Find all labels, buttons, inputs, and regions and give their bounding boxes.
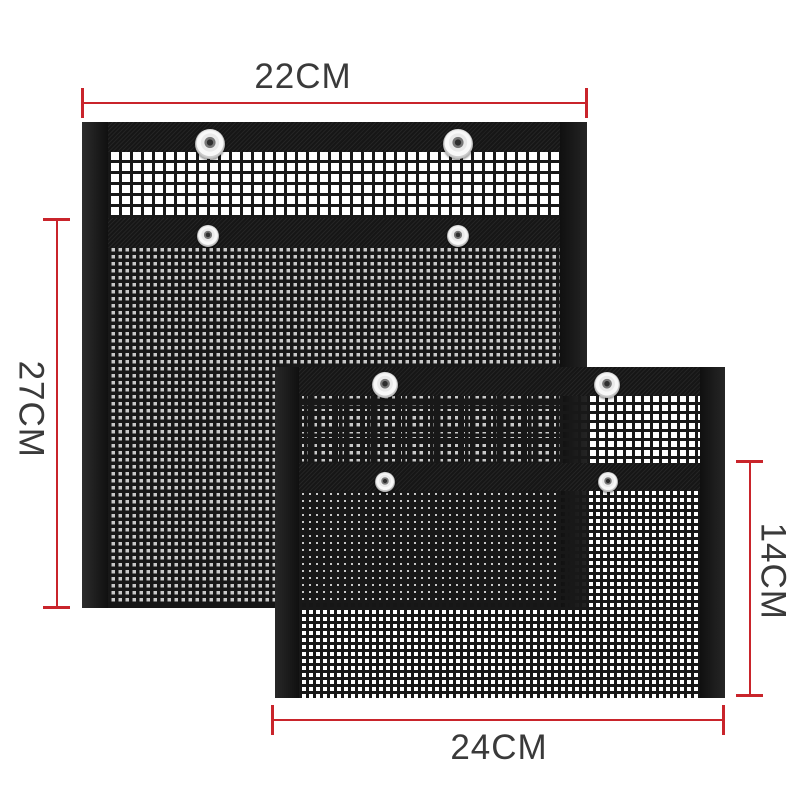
snap-fastener <box>372 372 398 398</box>
snap-fastener <box>447 225 469 247</box>
small-bag-body-mesh <box>299 491 700 698</box>
snap-fastener <box>594 372 620 398</box>
snap-fastener <box>197 225 219 247</box>
bottom-dimension-line <box>272 719 724 721</box>
left-dimension-line <box>56 220 58 608</box>
top-dimension-tick-left <box>81 88 84 118</box>
large-bag-left-binding <box>82 122 108 608</box>
right-dimension-line <box>749 462 751 697</box>
bottom-dimension-tick-right <box>722 705 725 735</box>
small-bag-top-band <box>299 367 700 396</box>
top-dimension-line <box>82 102 587 104</box>
large-bag-flap-mesh <box>108 152 560 218</box>
right-height-label: 14CM <box>753 496 792 646</box>
left-dimension-tick-bottom <box>43 606 70 609</box>
snap-fastener <box>195 129 225 159</box>
large-bag-top-band <box>108 122 560 152</box>
small-bag-flap-mesh <box>299 396 700 463</box>
right-dimension-tick-bottom <box>736 694 763 697</box>
large-bag-snap-band <box>108 218 560 248</box>
left-height-label: 27CM <box>11 334 50 484</box>
product-photo-canvas: 22CM 27CM 14CM 24CM <box>0 0 800 800</box>
snap-fastener <box>598 472 618 492</box>
right-dimension-tick-top <box>736 460 763 463</box>
top-width-label: 22CM <box>228 58 378 97</box>
top-dimension-tick-right <box>585 88 588 118</box>
bottom-dimension-tick-left <box>271 705 274 735</box>
small-bag-snap-band <box>299 463 700 491</box>
small-mesh-bag <box>275 367 725 698</box>
snap-fastener <box>375 472 395 492</box>
snap-fastener <box>443 129 473 159</box>
small-bag-left-binding <box>275 367 299 698</box>
left-dimension-tick-top <box>43 218 70 221</box>
bottom-width-label: 24CM <box>424 729 574 768</box>
small-bag-right-binding <box>700 367 725 698</box>
